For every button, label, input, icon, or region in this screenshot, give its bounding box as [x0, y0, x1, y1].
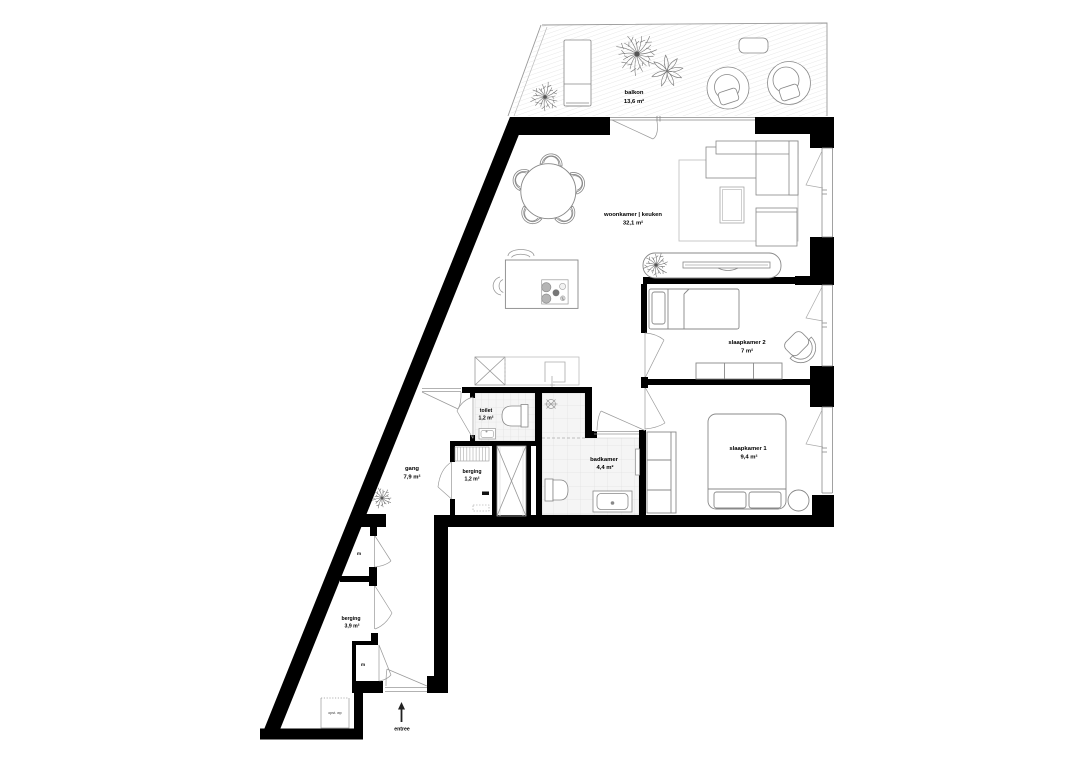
svg-text:balkon: balkon [625, 90, 644, 96]
svg-text:slaapkamer 1: slaapkamer 1 [729, 446, 767, 452]
svg-text:gang: gang [405, 466, 419, 472]
svg-text:woonkamer | keuken: woonkamer | keuken [603, 212, 662, 218]
svg-text:m: m [361, 662, 365, 667]
svg-text:3,9 m²: 3,9 m² [345, 624, 360, 630]
svg-text:1,2 m²: 1,2 m² [465, 477, 480, 483]
svg-text:berging: berging [341, 616, 360, 622]
svg-text:berging: berging [462, 469, 481, 475]
svg-text:13,6 m²: 13,6 m² [624, 98, 644, 105]
svg-text:1,2 m²: 1,2 m² [479, 416, 494, 422]
svg-text:7 m²: 7 m² [741, 348, 753, 355]
svg-text:badkamer: badkamer [590, 457, 619, 463]
svg-text:7,9 m²: 7,9 m² [403, 474, 420, 481]
svg-text:toilet: toilet [480, 408, 493, 414]
svg-text:9,4 m²: 9,4 m² [740, 454, 757, 461]
svg-text:slaapkamer 2: slaapkamer 2 [728, 340, 766, 346]
svg-text:m: m [357, 551, 361, 556]
svg-text:32,1 m²: 32,1 m² [623, 220, 643, 227]
svg-text:entree: entree [394, 727, 410, 733]
svg-text:opst. wp: opst. wp [328, 711, 341, 715]
svg-text:4,4 m²: 4,4 m² [596, 464, 613, 471]
